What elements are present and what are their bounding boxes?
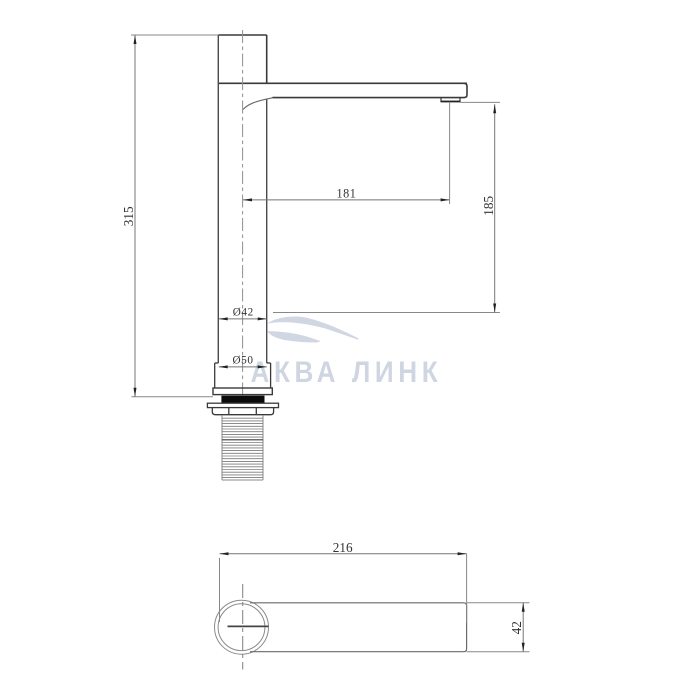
svg-text:216: 216 <box>333 540 353 555</box>
svg-text:42: 42 <box>509 621 524 634</box>
svg-text:181: 181 <box>337 187 357 201</box>
svg-text:185: 185 <box>481 196 496 216</box>
svg-text:315: 315 <box>121 206 136 226</box>
svg-text:АКВА ЛИНК: АКВА ЛИНК <box>251 355 443 388</box>
svg-text:Ø42: Ø42 <box>233 307 254 319</box>
svg-text:Ø50: Ø50 <box>232 355 253 367</box>
